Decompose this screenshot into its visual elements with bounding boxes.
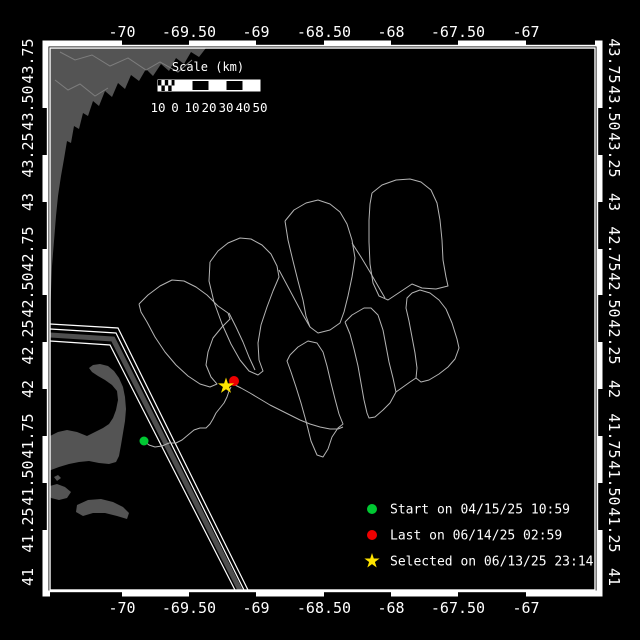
lat-tick-left: 42	[19, 380, 37, 398]
scale-bar-number: 0	[171, 100, 179, 115]
lon-tick-bottom: -69.50	[162, 599, 216, 617]
lat-tick-left: 43.25	[19, 132, 37, 177]
lat-tick-left: 43	[19, 193, 37, 211]
lat-tick-left: 42.25	[19, 319, 37, 364]
lat-tick-right: 42	[605, 380, 623, 398]
lat-tick-left: 41.25	[19, 507, 37, 552]
legend-last-dot-icon	[367, 530, 377, 540]
lat-tick-right: 41	[605, 568, 623, 586]
lat-tick-right: 43	[605, 193, 623, 211]
lat-tick-left: 43.75	[19, 38, 37, 83]
lat-tick-right: 42.75	[605, 226, 623, 271]
lon-tick-top: -67.50	[431, 23, 485, 41]
lat-tick-right: 41.50	[605, 460, 623, 505]
scale-bar-number: 10	[184, 100, 199, 115]
scale-bar-number: 20	[201, 100, 216, 115]
scale-bar-title: Scale (km)	[172, 60, 244, 74]
scale-bar-number: 50	[252, 100, 267, 115]
lon-tick-bottom: -70	[108, 599, 135, 617]
lat-tick-left: 41	[19, 568, 37, 586]
legend-label: Selected on 06/13/25 23:14	[390, 555, 594, 570]
legend-label: Start on 04/15/25 10:59	[390, 503, 570, 518]
lat-tick-right: 43.75	[605, 38, 623, 83]
lon-tick-bottom: -67.50	[431, 599, 485, 617]
legend-label: Last on 06/14/25 02:59	[390, 529, 562, 544]
lat-tick-right: 41.75	[605, 413, 623, 458]
lat-tick-right: 42.25	[605, 319, 623, 364]
lon-tick-top: -68.50	[297, 23, 351, 41]
lat-tick-right: 43.25	[605, 132, 623, 177]
lat-tick-right: 43.50	[605, 85, 623, 130]
lon-tick-top: -67	[512, 23, 539, 41]
lon-tick-top: -68	[377, 23, 404, 41]
lon-tick-bottom: -68.50	[297, 599, 351, 617]
lon-tick-bottom: -69	[242, 599, 269, 617]
lon-tick-top: -69	[242, 23, 269, 41]
scale-bar-number: 10	[150, 100, 165, 115]
lat-tick-left: 41.50	[19, 460, 37, 505]
lon-tick-top: -70	[108, 23, 135, 41]
legend: Start on 04/15/25 10:59Last on 06/14/25 …	[364, 503, 593, 570]
legend-start-dot-icon	[367, 504, 377, 514]
map-canvas[interactable]: -70-70-69.50-69.50-69-69-68.50-68.50-68-…	[0, 0, 640, 640]
start-marker[interactable]	[140, 437, 149, 446]
scale-bar-number: 40	[235, 100, 250, 115]
lat-tick-left: 42.75	[19, 226, 37, 271]
lon-tick-bottom: -68	[377, 599, 404, 617]
scale-bar-number: 30	[218, 100, 233, 115]
lon-tick-top: -69.50	[162, 23, 216, 41]
lat-tick-right: 42.50	[605, 272, 623, 317]
glider-track-map: -70-70-69.50-69.50-69-69-68.50-68.50-68-…	[0, 0, 640, 640]
lat-tick-right: 41.25	[605, 507, 623, 552]
lat-tick-left: 43.50	[19, 85, 37, 130]
lat-tick-left: 41.75	[19, 413, 37, 458]
lat-tick-left: 42.50	[19, 272, 37, 317]
lon-tick-bottom: -67	[512, 599, 539, 617]
